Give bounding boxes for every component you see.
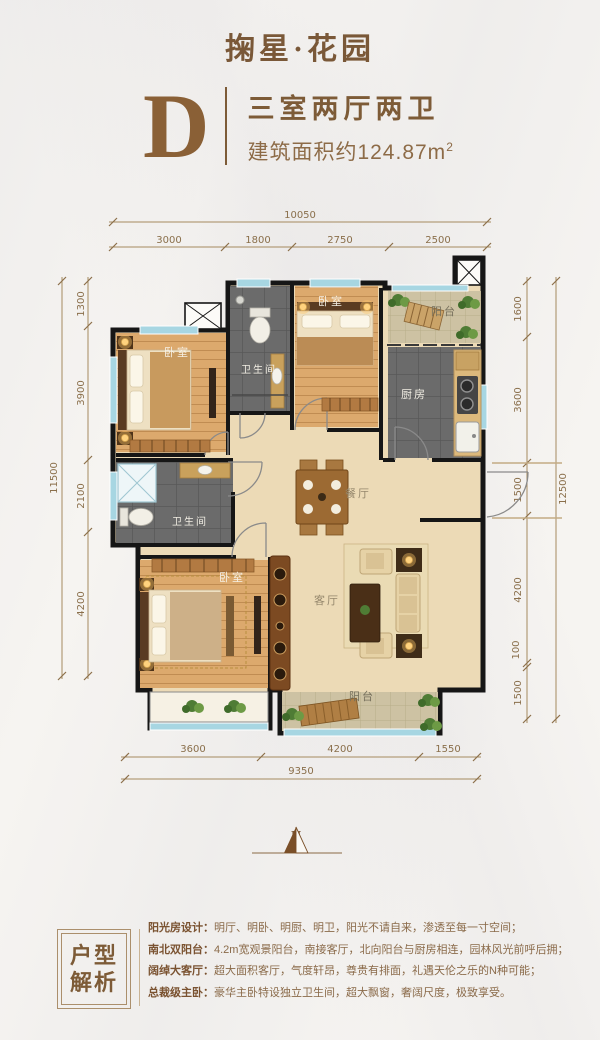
room-label-living: 客厅 — [314, 593, 340, 607]
dim-left-total: 11500 — [49, 462, 60, 494]
dim-left-seg-4: 4200 — [76, 591, 87, 616]
window-balcony2 — [284, 729, 436, 736]
room-label-balcony-1: 阳台 — [431, 304, 457, 318]
dim-left-seg-1: 1300 — [76, 291, 87, 316]
analysis-title-inner-frame: 户型 解析 — [61, 933, 127, 1005]
dim-bottom-seg-3: 1550 — [435, 744, 460, 755]
room-label-bathroom-1: 卫生间 — [241, 363, 277, 376]
window-bedroom2 — [310, 279, 360, 287]
bay-window-sill — [150, 692, 268, 722]
dim-right-seg-1: 1600 — [513, 296, 524, 321]
dim-left-seg-3: 2100 — [76, 483, 87, 508]
analysis-item: 总裁级主卧：豪华主卧特设独立卫生间，超大飘窗，奢阔尺度，极致享受。 — [148, 983, 598, 1005]
dim-top-total: 10050 — [284, 210, 316, 221]
analysis-item-text: 豪华主卧特设独立卫生间，超大飘窗，奢阔尺度，极致享受。 — [214, 987, 511, 999]
analysis-items: 阳光房设计：明厅、明卧、明厨、明卫，阳光不请自来，渗透至每一寸空间； 南北双阳台… — [148, 918, 598, 1004]
room-label-bedroom-2: 卧室 — [318, 294, 344, 308]
compass: N — [252, 827, 342, 853]
room-label-kitchen: 厨房 — [401, 388, 427, 401]
analysis-item: 阳光房设计：明厅、明卧、明厨、明卫，阳光不请自来，渗透至每一寸空间； — [148, 918, 598, 940]
dim-top-seg-3: 2750 — [327, 235, 352, 246]
dim-right-seg-5: 100 — [511, 640, 522, 659]
window-bathroom1 — [237, 279, 270, 287]
window-balcony1 — [392, 285, 468, 291]
floorplan-svg: 10050 3000 1800 2750 2500 3600 4200 1550… — [0, 0, 600, 1040]
dim-right-seg-6: 1500 — [513, 680, 524, 705]
dim-right-seg-2: 3600 — [513, 387, 524, 412]
dim-right-seg-4: 4200 — [513, 577, 524, 602]
analysis-item-label: 阳光房设计： — [148, 922, 214, 934]
dining-set — [296, 460, 348, 535]
room-label-bathroom-2: 卫生间 — [172, 515, 208, 528]
analysis-item-label: 南北双阳台： — [148, 944, 214, 956]
analysis-item-label: 总裁级主卧： — [148, 987, 214, 999]
analysis-item-label: 阔绰大客厅： — [148, 965, 214, 977]
dim-bottom-seg-1: 3600 — [180, 744, 205, 755]
analysis-item-text: 超大面积客厅，气度轩昂，尊贵有排面，礼遇天伦之乐的N种可能； — [214, 965, 541, 977]
room-label-balcony-2: 阳台 — [349, 689, 375, 703]
analysis-title-line-2: 解析 — [70, 969, 118, 996]
analysis-item: 阔绰大客厅：超大面积客厅，气度轩昂，尊贵有排面，礼遇天伦之乐的N种可能； — [148, 961, 598, 983]
kitchen-fixtures — [454, 350, 481, 456]
dim-top-seg-1: 3000 — [156, 235, 181, 246]
floorplan-page: 掬星·花园 D 三室两厅两卫 建筑面积约124.87m2 — [0, 0, 600, 1040]
window-bedroom1-top — [140, 326, 198, 334]
living-furniture — [344, 544, 428, 658]
analysis-item-text: 4.2m宽观景阳台，南接客厅，北向阳台与厨房相连，园林风光前呼后拥； — [214, 944, 568, 956]
analysis-divider — [139, 929, 140, 1006]
compass-needle-right — [296, 827, 308, 853]
analysis-title-box: 户型 解析 — [57, 929, 131, 1009]
window-bay — [150, 723, 268, 730]
room-label-dining: 餐厅 — [345, 486, 371, 500]
room-label-bedroom-3: 卧室 — [219, 570, 245, 584]
analysis-title-line-1: 户型 — [70, 942, 118, 969]
dim-top-seg-4: 2500 — [425, 235, 450, 246]
partition-cabinet — [270, 556, 290, 690]
analysis-item-text: 明厅、明卧、明厨、明卫，阳光不请自来，渗透至每一寸空间； — [214, 922, 522, 934]
room-label-bedroom-1: 卧室 — [164, 345, 190, 359]
dim-bottom-seg-2: 4200 — [327, 744, 352, 755]
window-bedroom1-left — [110, 357, 117, 423]
window-bathroom2 — [110, 472, 117, 520]
dim-top-seg-2: 1800 — [245, 235, 270, 246]
dim-right-total: 12500 — [558, 473, 569, 505]
dim-left-seg-2: 3900 — [76, 380, 87, 405]
dim-bottom-total: 9350 — [288, 766, 313, 777]
analysis-item: 南北双阳台：4.2m宽观景阳台，南接客厅，北向阳台与厨房相连，园林风光前呼后拥； — [148, 940, 598, 962]
